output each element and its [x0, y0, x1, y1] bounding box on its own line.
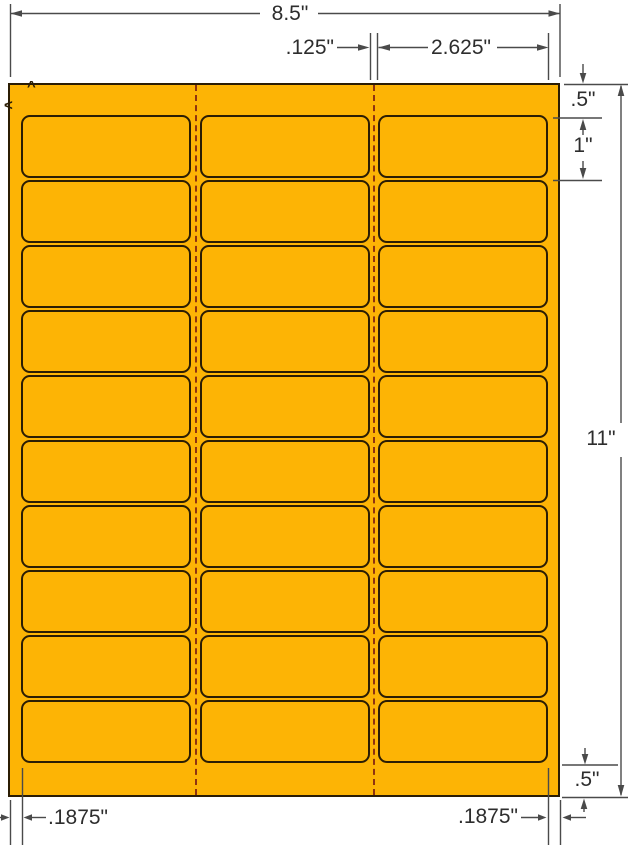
label-sheet-template-diagram: ^ <	[0, 0, 640, 846]
dim-gutter-label: .125"	[268, 36, 334, 59]
arrow-left-icon	[24, 814, 33, 821]
arrow-left-icon	[563, 814, 572, 821]
dim-page-width-label: 8.5"	[262, 2, 318, 25]
arrow-right-icon	[537, 44, 549, 51]
dim-top-margin-label: .5"	[566, 88, 600, 111]
dim-page-height-lines	[618, 85, 625, 797]
dim-label-height-lines	[553, 161, 602, 181]
arrow-right-icon	[1, 814, 10, 821]
arrow-down-icon	[582, 754, 589, 765]
dim-label-width-label: 2.625"	[427, 36, 495, 59]
arrow-up-icon	[580, 119, 587, 130]
arrow-down-icon	[580, 168, 587, 179]
dim-left-margin-label: .1875"	[48, 806, 122, 829]
arrow-right-icon	[538, 814, 547, 821]
dim-page-height-label: 11"	[585, 427, 617, 450]
arrow-right-icon	[358, 44, 370, 51]
arrow-right-icon	[549, 10, 561, 17]
arrow-up-icon	[581, 799, 588, 810]
arrow-up-icon	[618, 85, 625, 97]
dim-left-margin-lines	[0, 768, 46, 845]
arrow-down-icon	[580, 73, 587, 84]
arrow-down-icon	[618, 785, 625, 797]
dim-label-height-label: 1"	[567, 134, 599, 157]
dim-gutter-lines	[337, 33, 378, 80]
dimension-annotations	[0, 0, 640, 846]
dim-bottom-margin-label: .5"	[570, 768, 604, 791]
dim-right-margin-label: .1875"	[444, 805, 518, 828]
arrow-left-icon	[11, 10, 23, 17]
